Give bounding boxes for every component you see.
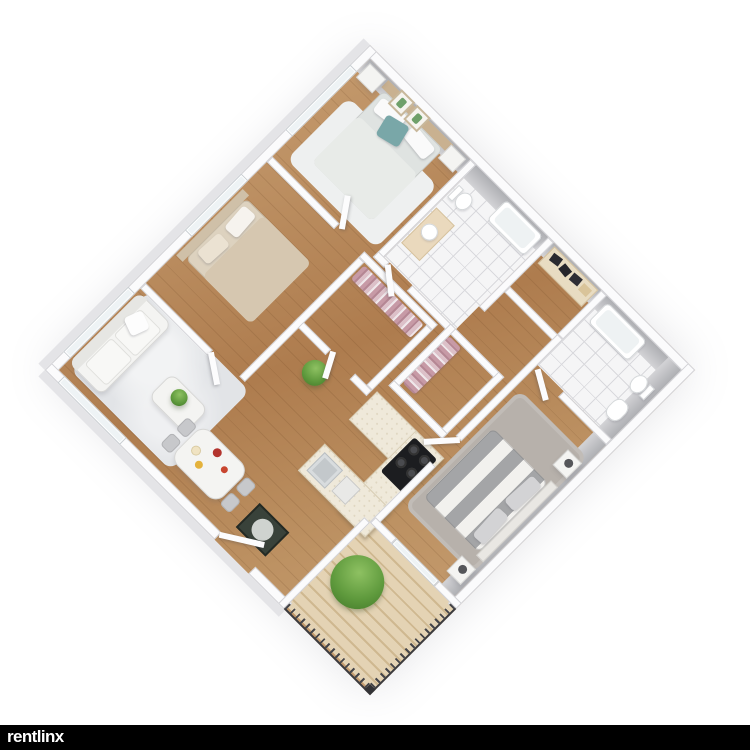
floorplan-3d bbox=[45, 45, 696, 696]
brand-bar: rentlinx bbox=[0, 725, 750, 750]
brand-logo: rentlinx bbox=[7, 727, 64, 747]
floorplan-screenshot: rentlinx bbox=[0, 0, 750, 750]
